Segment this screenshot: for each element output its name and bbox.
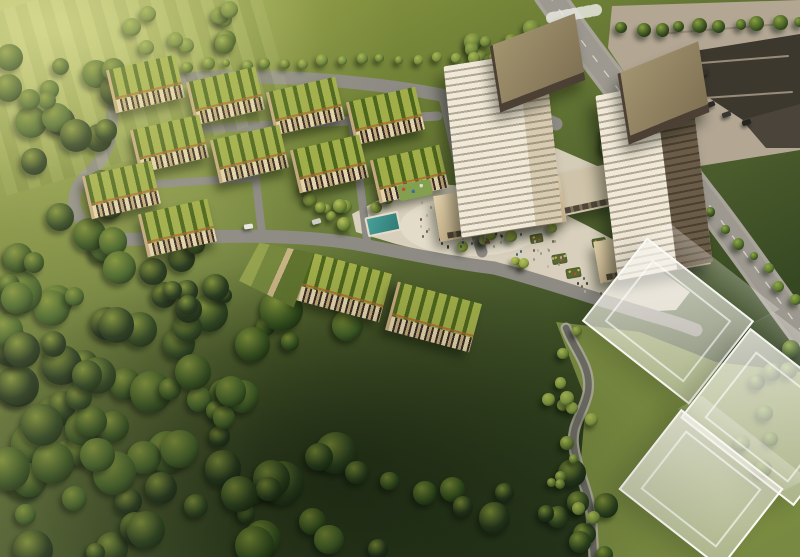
crosswalk xyxy=(552,10,596,18)
street-mid-b xyxy=(124,178,250,186)
stage: Aerial architectural rendering of a mast… xyxy=(0,0,800,557)
